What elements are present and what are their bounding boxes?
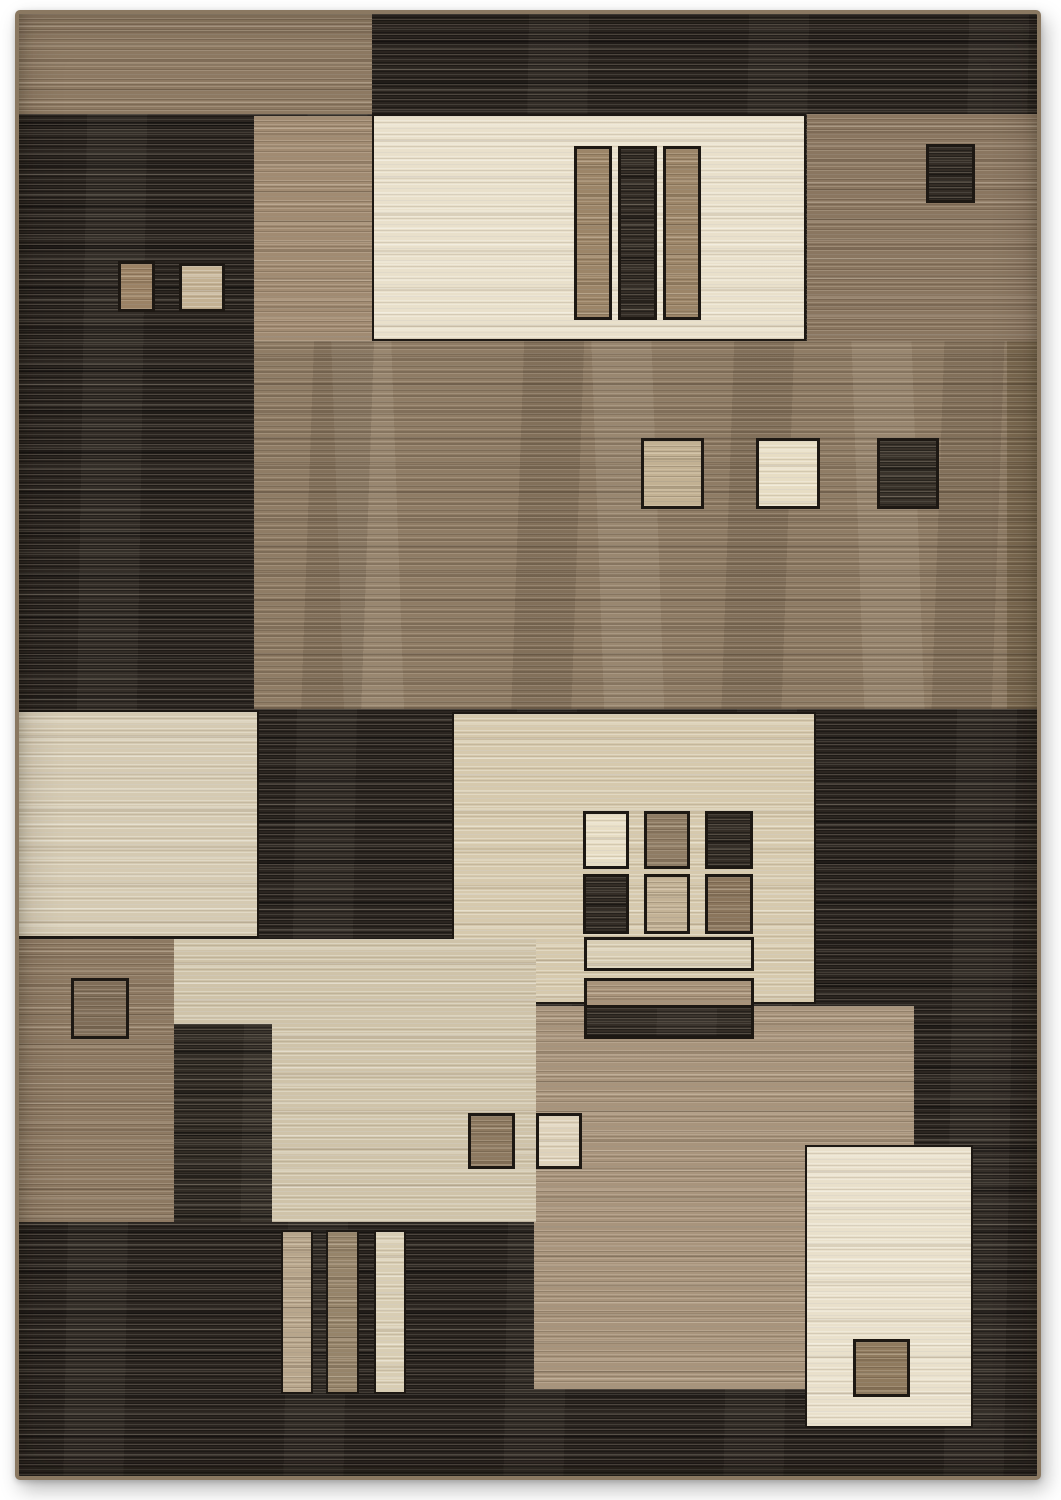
- middle-square-dark: [880, 441, 936, 506]
- grid-square-brown: [708, 877, 750, 931]
- middle-band-right-shade: [1007, 341, 1041, 709]
- middle-taupe-band: [254, 341, 1041, 709]
- left-cream-panel: [19, 712, 257, 936]
- upper-right-taupe-panel: [807, 114, 1041, 351]
- upper-left-square-tan: [121, 264, 152, 309]
- upper-bar-tan-right: [666, 149, 698, 317]
- upper-right-dark-square: [929, 147, 972, 200]
- area-rug: [15, 10, 1041, 1480]
- grid-square-cream: [586, 814, 626, 866]
- upper-bar-dark: [621, 149, 654, 317]
- middle-square-tan: [644, 441, 701, 506]
- rug-product-photo: [0, 0, 1061, 1500]
- upper-bar-tan-left: [577, 149, 609, 317]
- middle-square-cream: [759, 441, 817, 506]
- bottom-bar-cream: [376, 1232, 404, 1392]
- grid-square-dark-1: [708, 814, 750, 866]
- upper-taupe-strip: [254, 116, 372, 341]
- grid-bar-dark: [587, 1008, 751, 1036]
- grid-square-dark-2: [586, 877, 626, 931]
- grid-bar-tan: [587, 981, 751, 1006]
- left-tan-square-outline: [74, 981, 126, 1036]
- pair-square-brown: [471, 1116, 512, 1166]
- grid-square-tan: [647, 814, 687, 866]
- bottom-right-brown-square: [856, 1342, 907, 1394]
- pair-square-cream: [539, 1116, 579, 1166]
- grid-square-light-tan: [647, 877, 687, 931]
- bottom-bar-brown: [328, 1232, 357, 1392]
- lower-dark-strip: [174, 1024, 272, 1222]
- top-tan-band: [19, 14, 372, 114]
- grid-bar-cream: [587, 940, 751, 968]
- bottom-bar-tan: [283, 1232, 311, 1392]
- upper-left-square-beige: [182, 266, 222, 309]
